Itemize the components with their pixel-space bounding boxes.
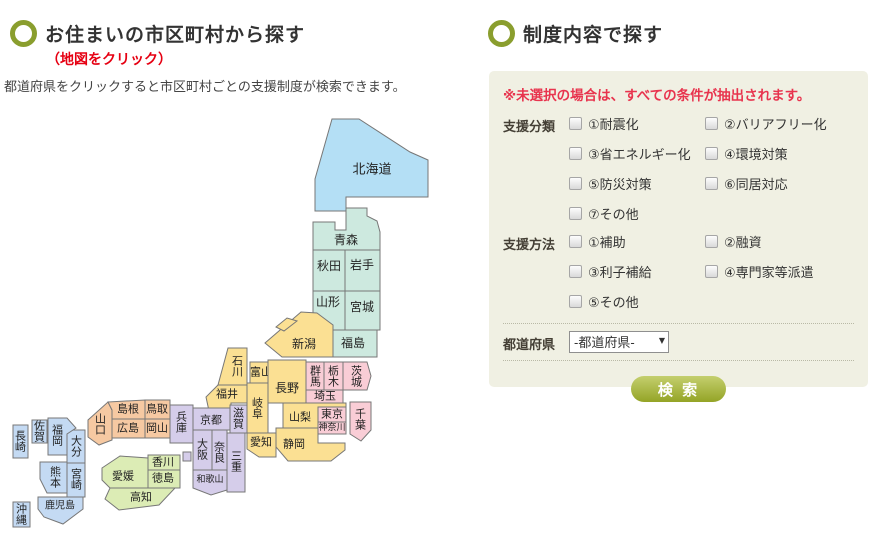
circle-bullet-icon xyxy=(488,20,515,47)
map-click-hint: （地図をクリック） xyxy=(46,49,172,69)
option-label: ②融資 xyxy=(724,232,762,251)
map-label-gifu: 岐阜 xyxy=(251,397,264,420)
checkbox-option[interactable]: ⑥同居対応 xyxy=(705,174,854,193)
option-checkbox[interactable] xyxy=(569,265,582,278)
checkbox-option[interactable]: ⑤その他 xyxy=(569,292,705,311)
map-label-tochigi: 栃木 xyxy=(327,364,340,388)
map-label-gunma: 群馬 xyxy=(309,364,322,388)
support-category-row: 支援分類 ①耐震化②バリアフリー化③省エネルギー化④環境対策⑤防災対策⑥同居対応… xyxy=(503,114,854,223)
map-label-nagano: 長野 xyxy=(275,381,299,395)
municipality-search-header: お住まいの市区町村から探す xyxy=(10,20,305,47)
map-label-kagoshima: 鹿児島 xyxy=(45,499,75,512)
prefecture-select-wrap: -都道府県- ▼ xyxy=(569,331,669,353)
map-label-miyazaki: 宮崎 xyxy=(70,467,83,490)
search-form-panel: ※未選択の場合は、すべての条件が抽出されます。 支援分類 ①耐震化②バリアフリー… xyxy=(489,71,868,387)
option-checkbox[interactable] xyxy=(705,117,718,130)
option-label: ④専門家等派遣 xyxy=(724,262,814,281)
support-category-label: 支援分類 xyxy=(503,114,569,223)
prefecture-label: 都道府県 xyxy=(503,332,569,353)
map-label-yamagata: 山形 xyxy=(316,295,340,309)
map-label-iwate: 岩手 xyxy=(350,257,374,272)
map-label-saitama: 埼玉 xyxy=(314,389,336,403)
option-label: ①耐震化 xyxy=(588,114,639,133)
map-label-hyogo: 兵庫 xyxy=(175,411,188,434)
map-label-shizuoka: 静岡 xyxy=(283,437,305,451)
map-label-aomori: 青森 xyxy=(334,232,358,247)
option-checkbox[interactable] xyxy=(705,265,718,278)
circle-bullet-icon xyxy=(10,20,37,47)
search-button[interactable]: 検 索 xyxy=(631,376,726,402)
map-label-fukui: 福井 xyxy=(216,387,238,401)
checkbox-option[interactable]: ③省エネルギー化 xyxy=(569,144,705,163)
map-label-ehime: 愛媛 xyxy=(112,469,134,483)
unselected-note: ※未選択の場合は、すべての条件が抽出されます。 xyxy=(503,84,854,104)
japan-map[interactable]: 北海道青森秋田岩手山形宮城福島新潟群馬栃木茨城埼玉山梨東京神奈川千葉富山石川福井… xyxy=(0,100,460,541)
map-label-yamanashi: 山梨 xyxy=(289,410,311,424)
checkbox-option[interactable]: ⑦その他 xyxy=(569,204,705,223)
search-button-row: 検 索 xyxy=(503,376,854,402)
map-label-niigata: 新潟 xyxy=(292,336,316,351)
content-search-header: 制度内容で探す xyxy=(488,20,663,47)
map-label-kyoto: 京都 xyxy=(200,413,222,427)
map-label-kagawa: 香川 xyxy=(152,456,174,469)
map-label-saga: 佐賀 xyxy=(33,419,46,443)
option-checkbox[interactable] xyxy=(569,295,582,308)
map-label-shimane: 島根 xyxy=(117,402,139,416)
map-label-mie: 三重 xyxy=(230,450,243,472)
option-label: ③省エネルギー化 xyxy=(588,144,691,163)
prefecture-row: 都道府県 -都道府県- ▼ xyxy=(503,323,854,361)
option-checkbox[interactable] xyxy=(705,235,718,248)
map-label-miyagi: 宮城 xyxy=(350,299,374,314)
option-label: ⑤防災対策 xyxy=(588,174,652,193)
map-label-ishikawa: 石川 xyxy=(231,355,244,377)
option-label: ⑥同居対応 xyxy=(724,174,788,193)
checkbox-option[interactable]: ⑤防災対策 xyxy=(569,174,705,193)
checkbox-option[interactable]: ①補助 xyxy=(569,232,705,251)
support-method-label: 支援方法 xyxy=(503,232,569,311)
option-label: ①補助 xyxy=(588,232,626,251)
option-label: ⑦その他 xyxy=(588,204,639,223)
option-checkbox[interactable] xyxy=(569,207,582,220)
checkbox-option[interactable]: ④環境対策 xyxy=(705,144,854,163)
map-label-wakayama: 和歌山 xyxy=(196,473,223,485)
map-label-osaka: 大阪 xyxy=(196,437,209,461)
map-label-shiga: 滋賀 xyxy=(232,407,245,430)
right-section-title: 制度内容で探す xyxy=(523,20,663,47)
map-label-fukuoka: 福岡 xyxy=(51,423,64,447)
option-checkbox[interactable] xyxy=(569,235,582,248)
option-checkbox[interactable] xyxy=(569,177,582,190)
left-section-description: 都道府県をクリックすると市区町村ごとの支援制度が検索できます。 xyxy=(4,76,406,95)
map-label-nagasaki: 長崎 xyxy=(14,430,27,452)
map-label-aichi: 愛知 xyxy=(250,435,272,449)
option-label: ④環境対策 xyxy=(724,144,788,163)
map-label-nara: 奈良 xyxy=(213,440,226,464)
option-label: ②バリアフリー化 xyxy=(724,114,827,133)
map-label-chiba: 千葉 xyxy=(354,408,367,430)
map-label-kumamoto: 熊本 xyxy=(49,465,62,489)
checkbox-option[interactable]: ④専門家等派遣 xyxy=(705,262,854,281)
map-label-tokyo: 東京 xyxy=(321,407,343,421)
map-label-okinawa: 沖縄 xyxy=(15,503,28,525)
support-method-row: 支援方法 ①補助②融資③利子補給④専門家等派遣⑤その他 xyxy=(503,232,854,311)
checkbox-option[interactable]: ②バリアフリー化 xyxy=(705,114,854,133)
prefecture-select[interactable]: -都道府県- xyxy=(569,331,669,353)
option-checkbox[interactable] xyxy=(705,177,718,190)
map-prefecture-awaji xyxy=(183,452,191,461)
map-label-yamaguchi: 山口 xyxy=(94,413,107,435)
option-label: ⑤その他 xyxy=(588,292,639,311)
map-label-kochi: 高知 xyxy=(130,490,152,504)
map-label-akita: 秋田 xyxy=(317,259,341,273)
map-label-tokushima: 徳島 xyxy=(152,471,174,485)
checkbox-option[interactable]: ①耐震化 xyxy=(569,114,705,133)
option-checkbox[interactable] xyxy=(569,117,582,130)
map-label-tottori: 鳥取 xyxy=(146,402,168,416)
map-label-oita: 大分 xyxy=(70,434,83,457)
option-checkbox[interactable] xyxy=(569,147,582,160)
map-label-hiroshima: 広島 xyxy=(117,421,139,435)
support-category-options: ①耐震化②バリアフリー化③省エネルギー化④環境対策⑤防災対策⑥同居対応⑦その他 xyxy=(569,114,854,223)
checkbox-option[interactable]: ②融資 xyxy=(705,232,854,251)
option-checkbox[interactable] xyxy=(705,147,718,160)
support-method-options: ①補助②融資③利子補給④専門家等派遣⑤その他 xyxy=(569,232,854,311)
map-label-kanagawa: 神奈川 xyxy=(318,421,345,433)
checkbox-option[interactable]: ③利子補給 xyxy=(569,262,705,281)
map-label-fukushima: 福島 xyxy=(341,335,365,350)
map-label-ibaraki: 茨城 xyxy=(350,364,363,387)
option-label: ③利子補給 xyxy=(588,262,652,281)
map-label-okayama: 岡山 xyxy=(146,422,168,435)
left-section-title: お住まいの市区町村から探す xyxy=(45,20,305,47)
map-label-hokkaido: 北海道 xyxy=(352,163,391,178)
